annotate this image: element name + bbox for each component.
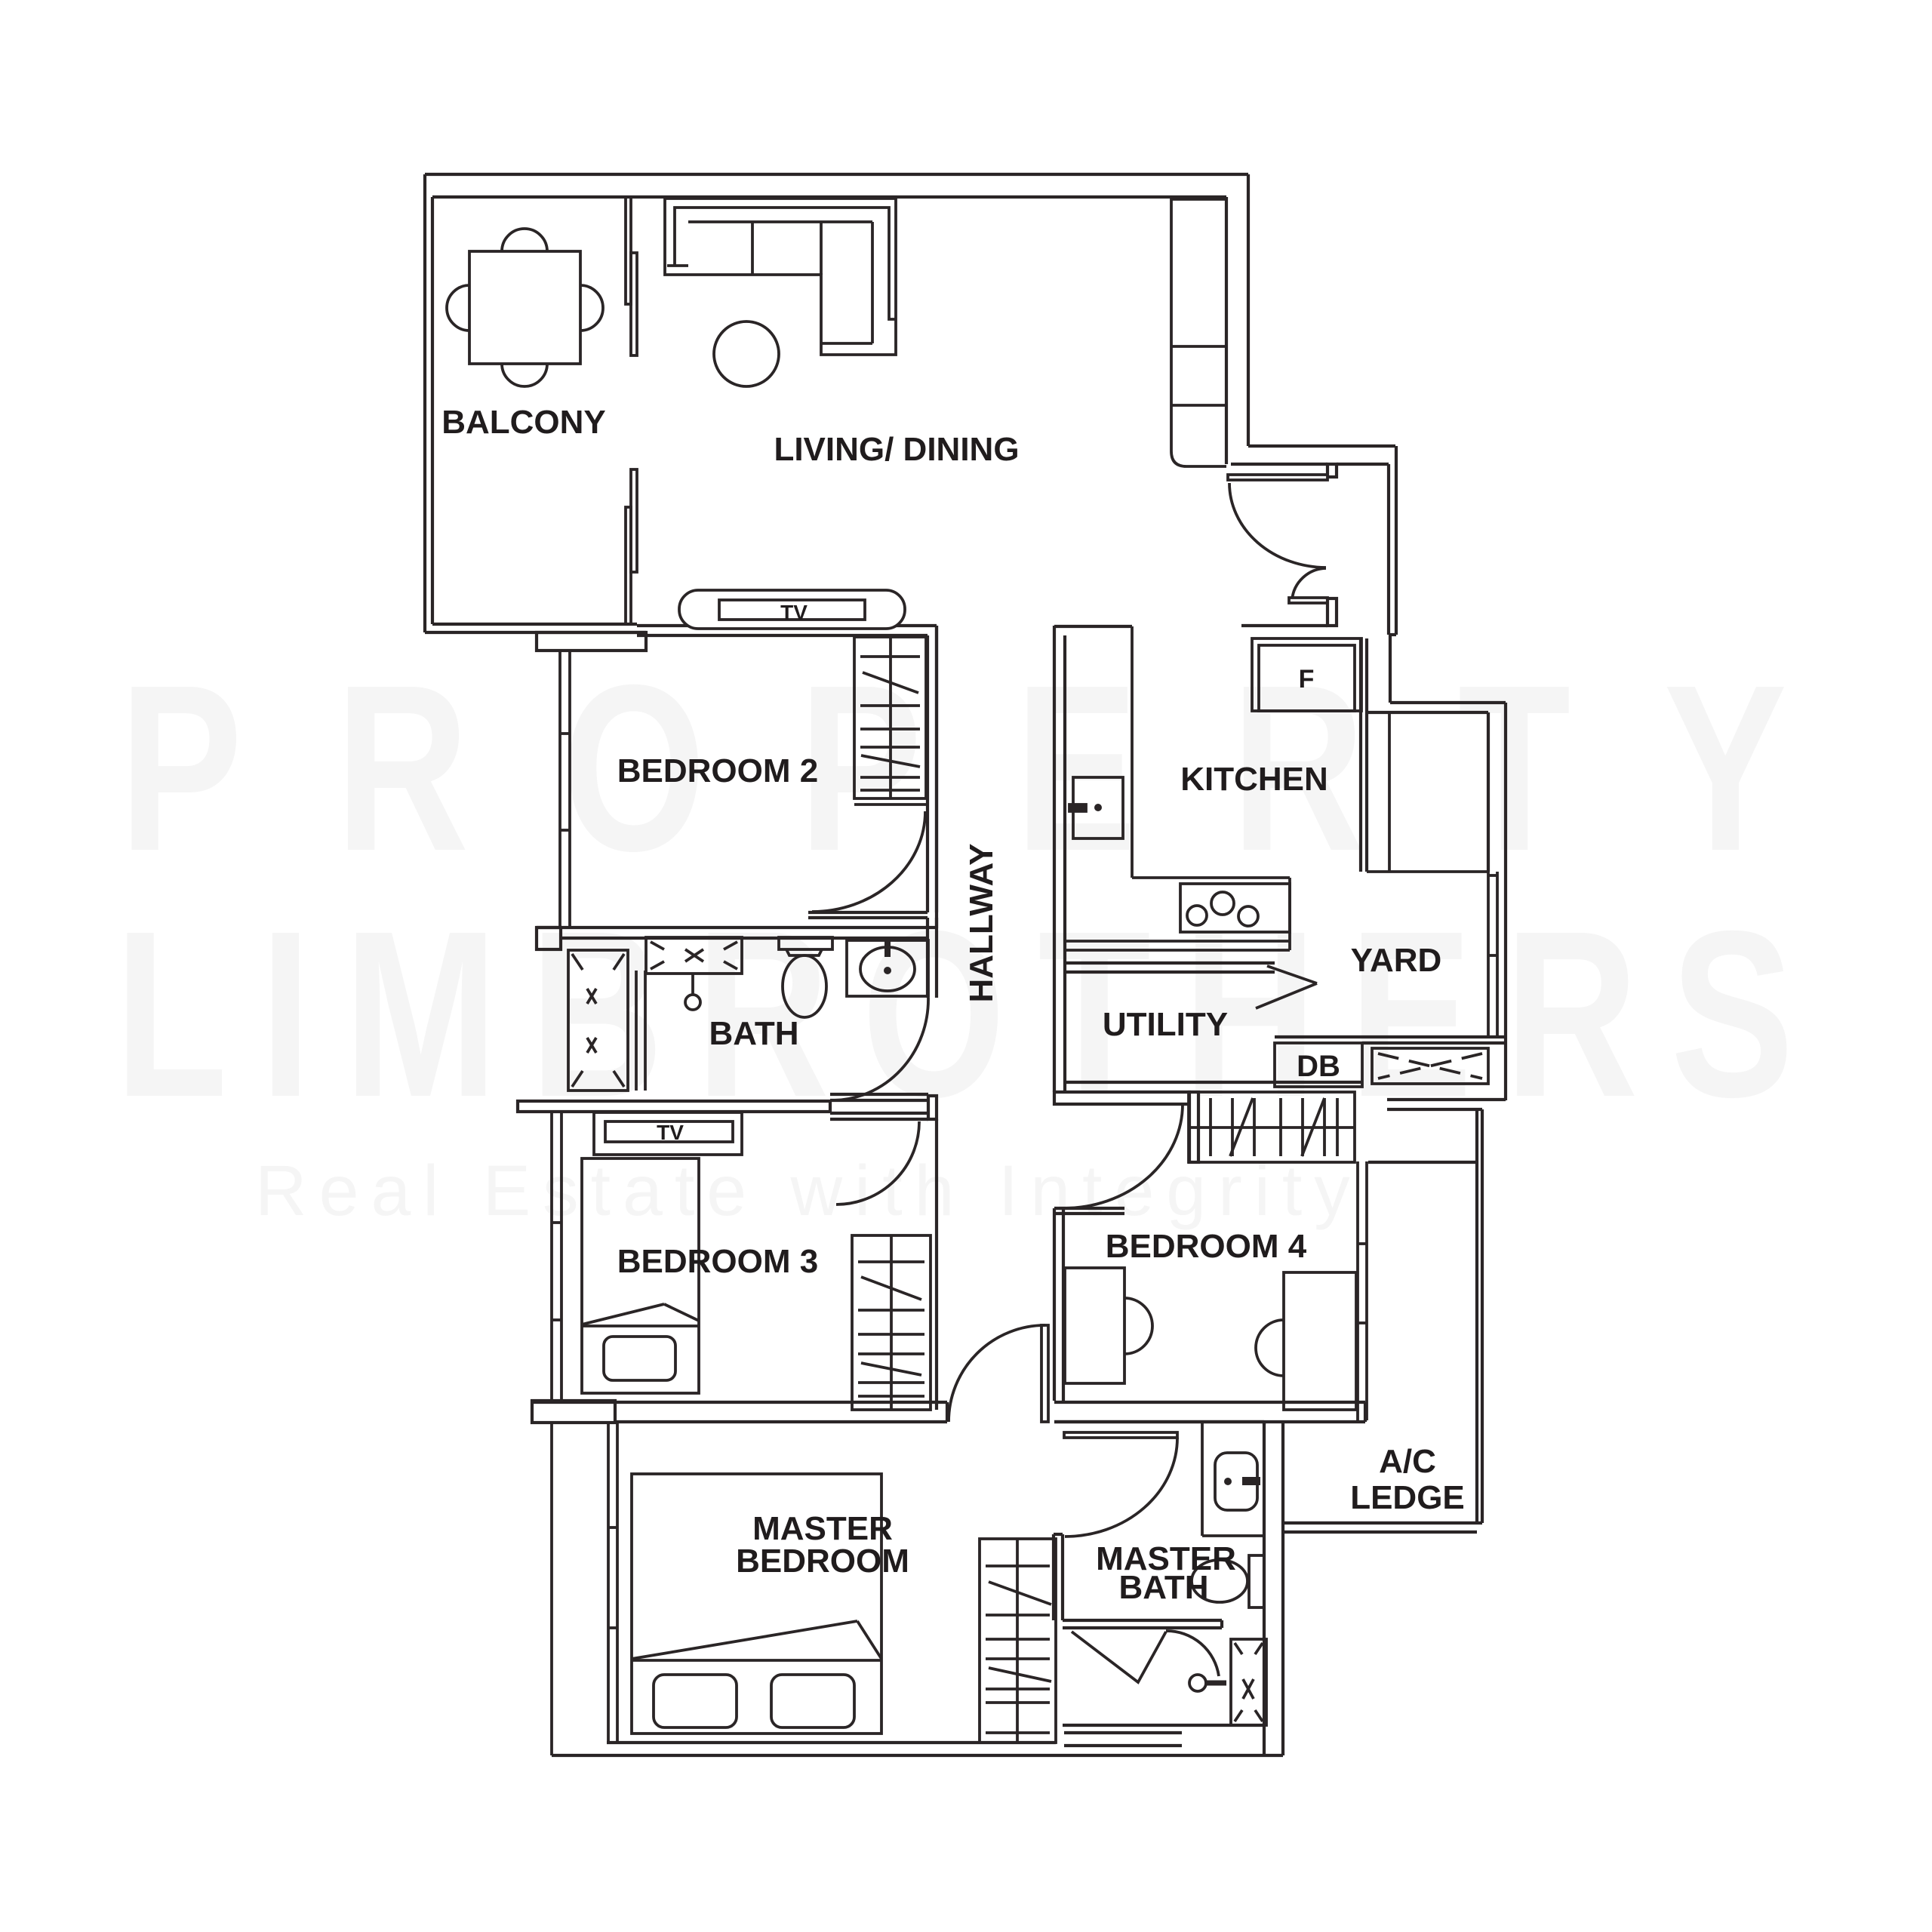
svg-text:BEDROOM 4: BEDROOM 4 <box>1106 1228 1307 1265</box>
svg-text:BATH: BATH <box>1119 1569 1209 1606</box>
svg-text:DB: DB <box>1297 1050 1340 1083</box>
svg-text:A/C: A/C <box>1379 1443 1436 1480</box>
svg-text:BALCONY: BALCONY <box>441 404 606 441</box>
svg-text:BEDROOM 2: BEDROOM 2 <box>617 752 818 789</box>
svg-text:BATH: BATH <box>709 1015 799 1052</box>
svg-text:MASTER: MASTER <box>752 1510 893 1547</box>
svg-text:LEDGE: LEDGE <box>1350 1479 1465 1516</box>
svg-text:TV: TV <box>780 601 808 624</box>
svg-text:TV: TV <box>657 1121 684 1144</box>
svg-text:BEDROOM: BEDROOM <box>736 1543 909 1580</box>
svg-text:HALLWAY: HALLWAY <box>963 843 1000 1002</box>
svg-text:YARD: YARD <box>1351 942 1442 979</box>
svg-text:F: F <box>1299 665 1315 694</box>
svg-text:KITCHEN: KITCHEN <box>1180 761 1328 798</box>
svg-text:UTILITY: UTILITY <box>1103 1006 1228 1043</box>
svg-text:BEDROOM 3: BEDROOM 3 <box>617 1243 818 1280</box>
svg-text:LIVING/ DINING: LIVING/ DINING <box>774 431 1019 468</box>
